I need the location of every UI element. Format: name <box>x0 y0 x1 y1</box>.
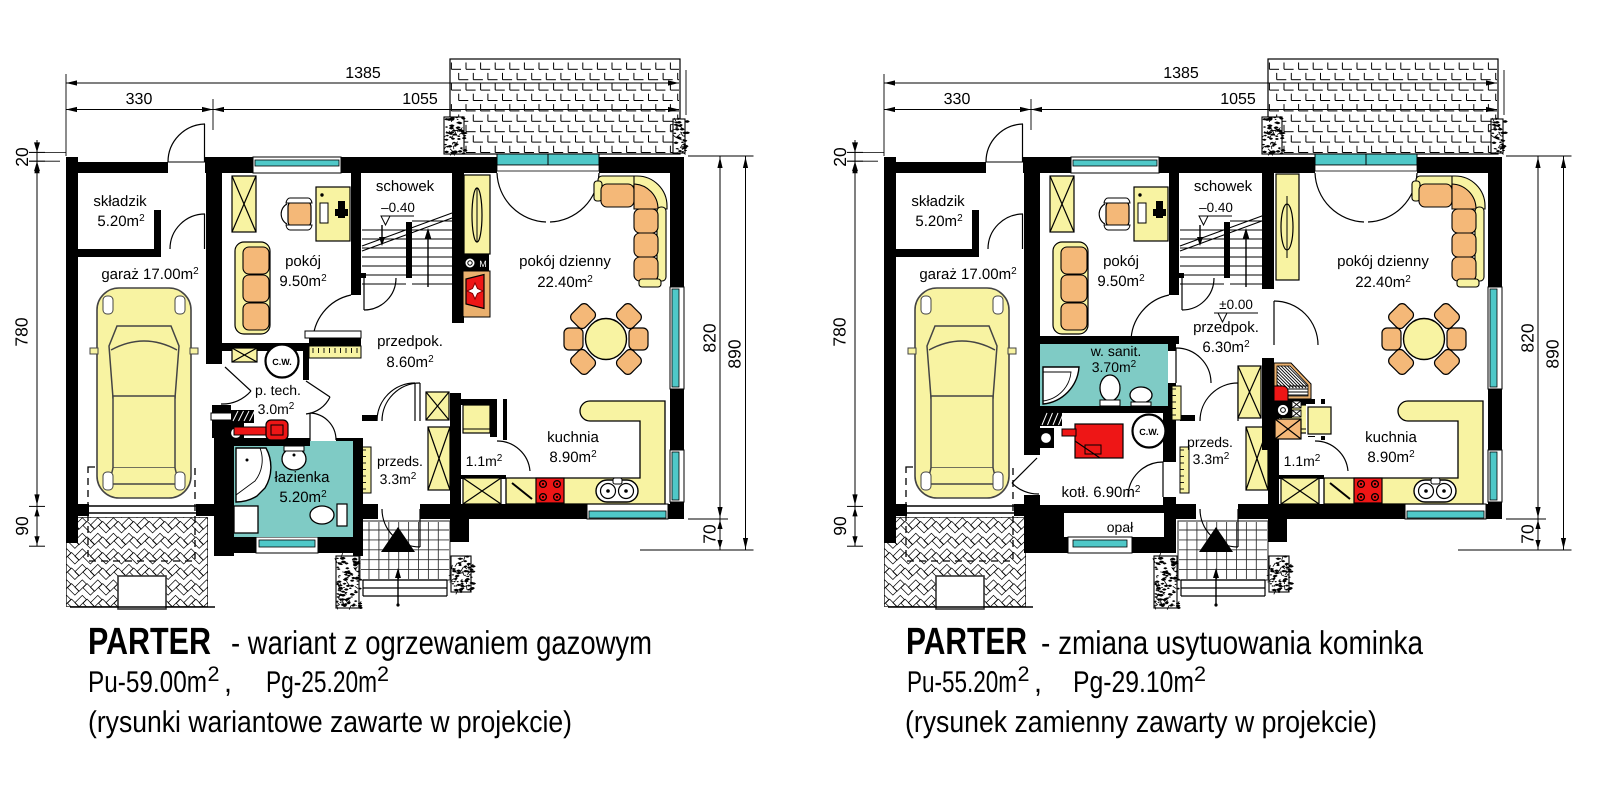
svg-text:780: 780 <box>12 317 32 346</box>
svg-text:składzik: składzik <box>93 193 147 210</box>
svg-text:820: 820 <box>700 323 720 352</box>
svg-text:C.W.: C.W. <box>1139 427 1159 437</box>
svg-text:8.90m2: 8.90m2 <box>549 449 597 466</box>
svg-text:M: M <box>479 259 487 269</box>
svg-text:1055: 1055 <box>1220 91 1256 108</box>
svg-text:±0.00: ±0.00 <box>1219 297 1253 312</box>
svg-text:22.40m2: 22.40m2 <box>1355 274 1411 291</box>
svg-text:1055: 1055 <box>402 91 438 108</box>
svg-text:–0.40: –0.40 <box>381 200 415 215</box>
svg-text:1385: 1385 <box>345 65 381 82</box>
svg-text:pokój dzienny: pokój dzienny <box>519 253 611 270</box>
svg-text:(rysunki wariantowe zawarte w: (rysunki wariantowe zawarte w projekcie) <box>88 706 572 739</box>
svg-text:kuchnia: kuchnia <box>1365 429 1417 446</box>
svg-text:Pg-29.10m: Pg-29.10m <box>1073 666 1194 699</box>
svg-text:(rysunek zamienny zawarty w pr: (rysunek zamienny zawarty w projekcie) <box>905 706 1377 739</box>
svg-text:6.30m2: 6.30m2 <box>1202 339 1250 356</box>
svg-text:p. tech.: p. tech. <box>255 382 301 398</box>
svg-text:Pu-59.00m: Pu-59.00m <box>88 666 207 699</box>
svg-text:22.40m2: 22.40m2 <box>537 274 593 291</box>
svg-text:składzik: składzik <box>911 193 965 210</box>
svg-text:780: 780 <box>830 317 850 346</box>
svg-text:schowek: schowek <box>1194 178 1253 195</box>
svg-text:przeds.: przeds. <box>377 453 423 469</box>
svg-text:schowek: schowek <box>376 178 435 195</box>
svg-text:łazienka: łazienka <box>274 469 330 486</box>
svg-text:pokój: pokój <box>285 253 321 270</box>
svg-text:5.20m2: 5.20m2 <box>97 213 145 230</box>
svg-text:70: 70 <box>1518 524 1538 544</box>
svg-text:5.20m2: 5.20m2 <box>915 213 963 230</box>
svg-text:pokój: pokój <box>1103 253 1139 270</box>
svg-text:Pg-25.20m: Pg-25.20m <box>266 666 377 699</box>
svg-text:90: 90 <box>12 516 32 536</box>
svg-text:kotł. 6.90m2: kotł. 6.90m2 <box>1062 484 1141 501</box>
svg-text:garaż 17.00m2: garaż 17.00m2 <box>101 266 199 283</box>
svg-text:,: , <box>224 666 232 699</box>
svg-text:przedpok.: przedpok. <box>1193 319 1259 336</box>
svg-text:820: 820 <box>1518 323 1538 352</box>
svg-text:kuchnia: kuchnia <box>547 429 599 446</box>
svg-text:- wariant z ogrzewaniem gazowy: - wariant z ogrzewaniem gazowym <box>231 624 652 661</box>
svg-text:890: 890 <box>725 339 745 368</box>
svg-text:- zmiana usytuowania kominka: - zmiana usytuowania kominka <box>1041 624 1424 661</box>
svg-text:20: 20 <box>12 147 32 167</box>
svg-text:70: 70 <box>700 524 720 544</box>
svg-text:przedpok.: przedpok. <box>377 333 443 350</box>
svg-text:opał: opał <box>1107 519 1134 535</box>
svg-text:,: , <box>1034 666 1042 699</box>
svg-text:9.50m2: 9.50m2 <box>279 273 327 290</box>
svg-text:8.60m2: 8.60m2 <box>386 354 434 371</box>
svg-text:2: 2 <box>1194 663 1206 686</box>
svg-text:Pu-55.20m: Pu-55.20m <box>907 666 1017 699</box>
svg-text:pokój dzienny: pokój dzienny <box>1337 253 1429 270</box>
svg-text:1385: 1385 <box>1163 65 1199 82</box>
svg-text:5.20m2: 5.20m2 <box>279 489 327 506</box>
svg-text:330: 330 <box>126 91 153 108</box>
svg-text:w. sanit.: w. sanit. <box>1090 343 1142 359</box>
svg-text:garaż 17.00m2: garaż 17.00m2 <box>919 266 1017 283</box>
svg-text:2: 2 <box>377 663 389 686</box>
svg-text:3.70m2: 3.70m2 <box>1092 359 1137 375</box>
svg-text:C.W.: C.W. <box>272 357 292 367</box>
svg-text:20: 20 <box>830 147 850 167</box>
svg-text:PARTER: PARTER <box>906 621 1027 663</box>
svg-text:9.50m2: 9.50m2 <box>1097 273 1145 290</box>
svg-text:przeds.: przeds. <box>1187 434 1233 450</box>
svg-text:PARTER: PARTER <box>88 621 211 663</box>
svg-text:–0.40: –0.40 <box>1199 200 1233 215</box>
svg-text:90: 90 <box>830 516 850 536</box>
svg-text:8.90m2: 8.90m2 <box>1367 449 1415 466</box>
svg-text:890: 890 <box>1543 339 1563 368</box>
svg-text:2: 2 <box>1018 663 1030 686</box>
svg-text:330: 330 <box>944 91 971 108</box>
svg-text:2: 2 <box>208 663 220 686</box>
